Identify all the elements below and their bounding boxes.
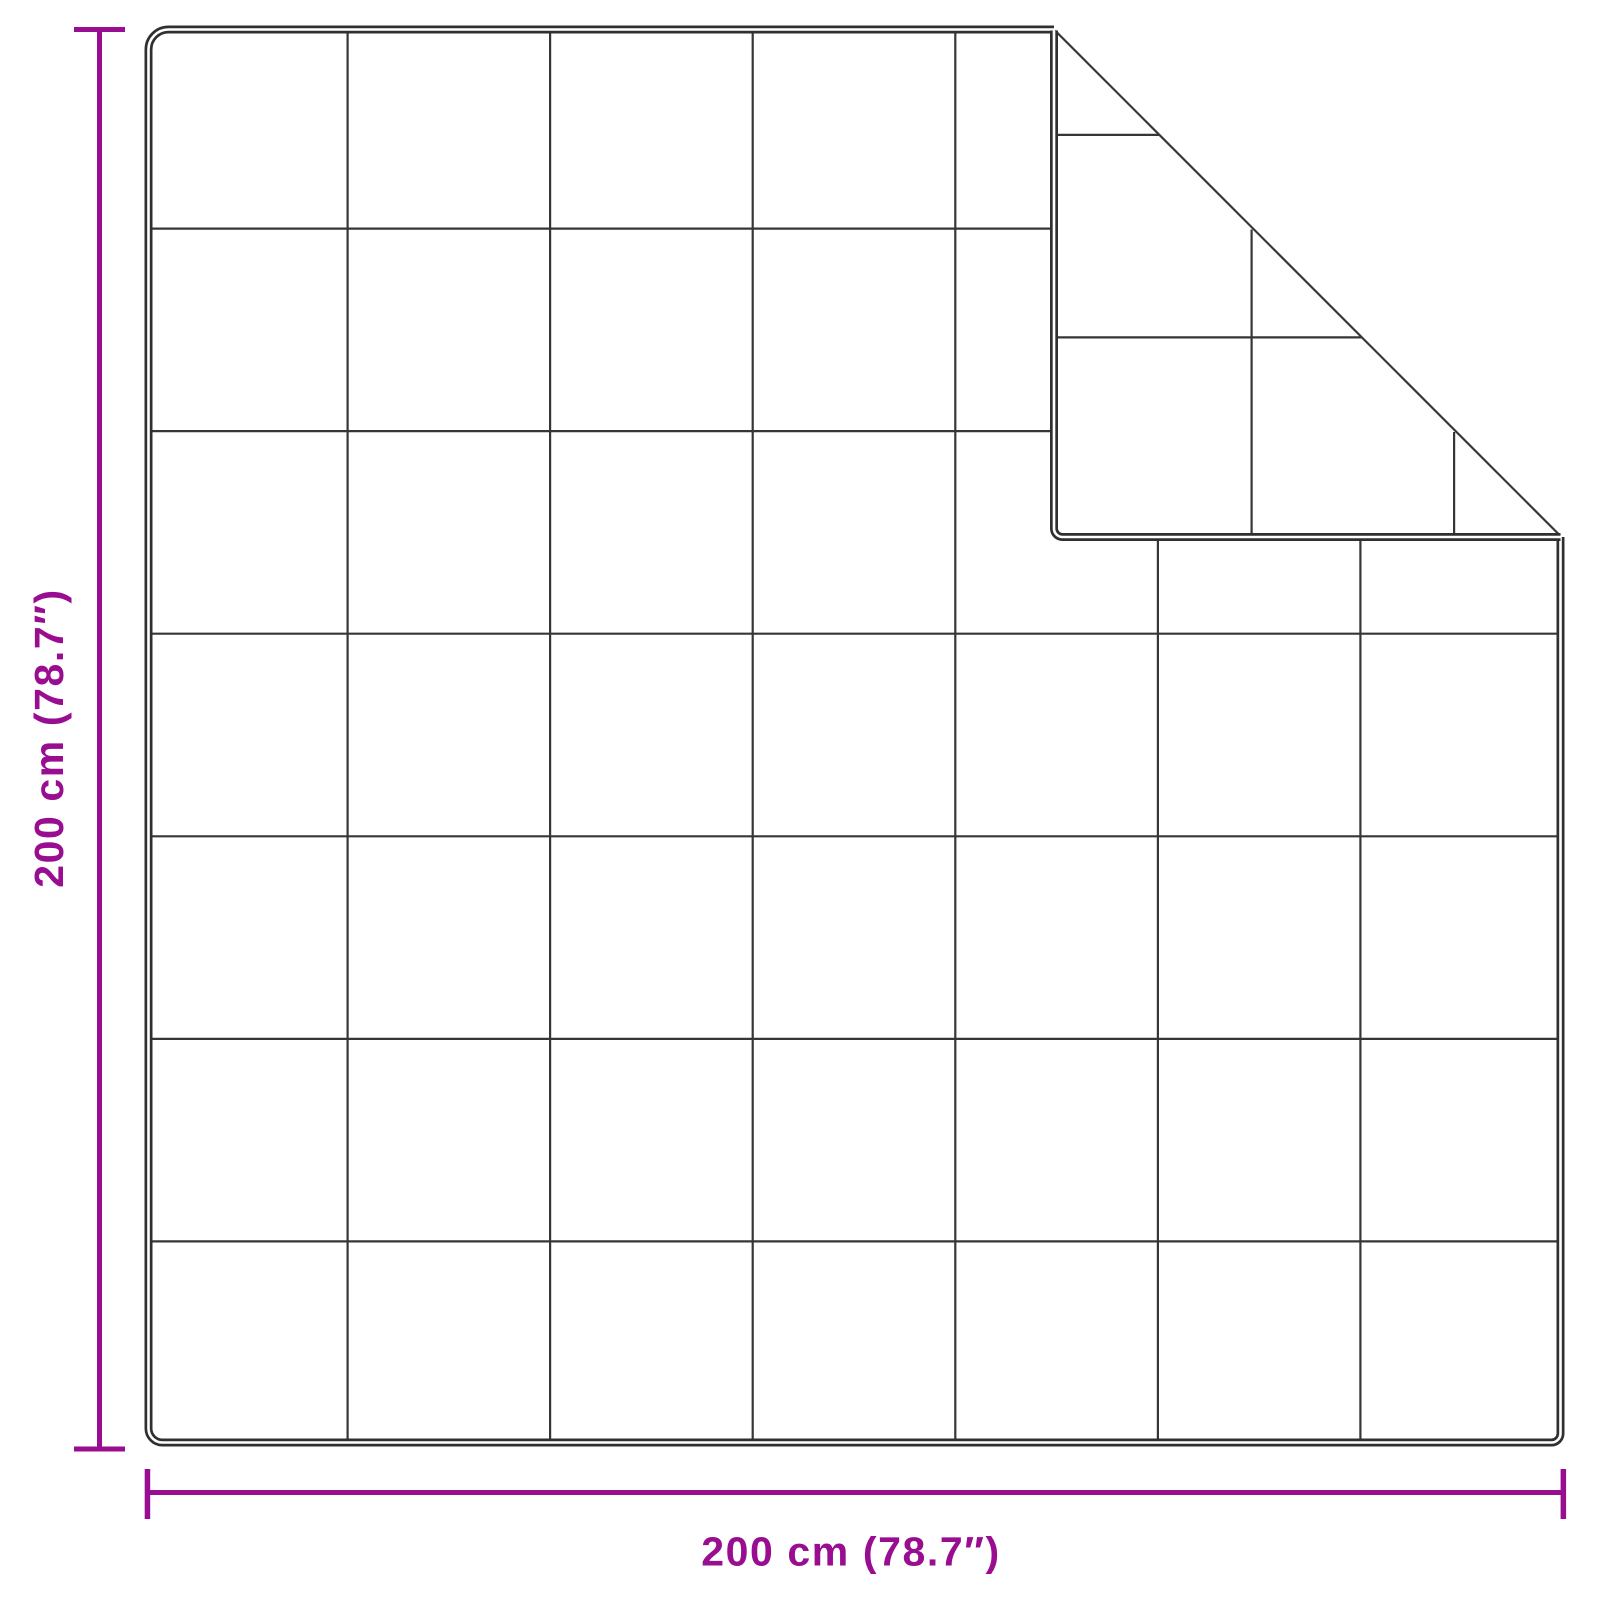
svg-text:200 cm (78.7″): 200 cm (78.7″) — [26, 588, 72, 888]
svg-text:200 cm (78.7″): 200 cm (78.7″) — [701, 1529, 1001, 1575]
